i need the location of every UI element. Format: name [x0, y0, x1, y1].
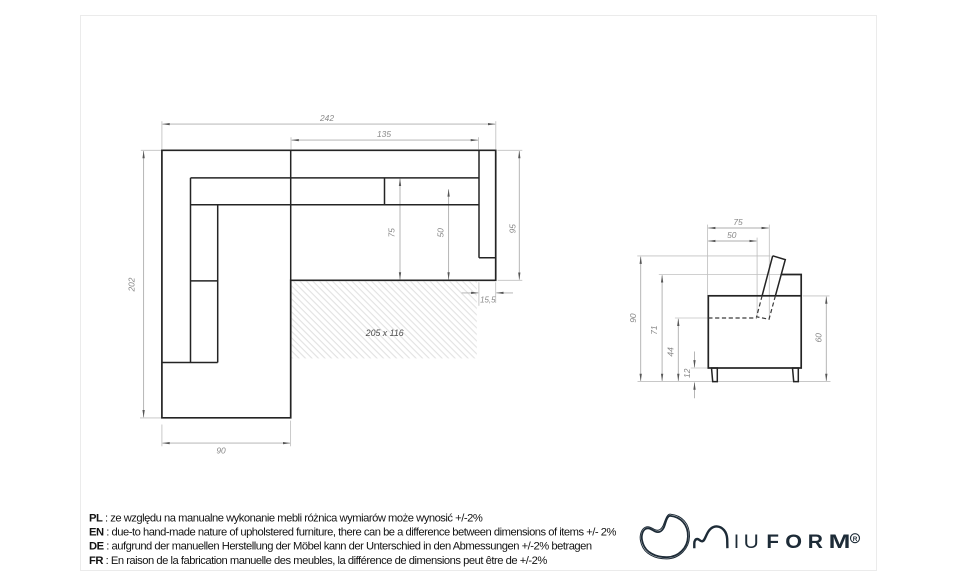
svg-text:U: U [744, 531, 759, 553]
svg-text:F: F [766, 531, 779, 553]
svg-text:15,5: 15,5 [480, 296, 496, 305]
svg-text:135: 135 [377, 129, 391, 139]
svg-text:FR : En raison de la fabricati: FR : En raison de la fabrication manuell… [89, 555, 547, 567]
svg-text:75: 75 [387, 228, 397, 238]
svg-text:DE : aufgrund der manuellen He: DE : aufgrund der manuellen Herstellung … [89, 541, 592, 553]
svg-text:44: 44 [665, 347, 675, 357]
svg-text:60: 60 [814, 333, 824, 343]
svg-text:205 x 116: 205 x 116 [365, 328, 404, 338]
svg-text:O: O [785, 531, 802, 553]
svg-text:75: 75 [733, 217, 743, 227]
svg-text:I: I [734, 531, 739, 553]
svg-text:R: R [853, 536, 858, 543]
svg-text:12: 12 [682, 368, 692, 378]
svg-text:71: 71 [649, 325, 659, 334]
svg-text:PL : ze względu na manualne wy: PL : ze względu na manualne wykonanie me… [89, 512, 483, 524]
svg-text:90: 90 [628, 313, 638, 323]
svg-text:M: M [829, 531, 851, 553]
svg-text:90: 90 [216, 445, 226, 455]
svg-text:R: R [808, 531, 823, 553]
svg-text:50: 50 [435, 228, 445, 238]
svg-text:50: 50 [727, 230, 737, 240]
svg-text:95: 95 [507, 224, 517, 234]
svg-text:EN : due-to hand-made nature o: EN : due-to hand-made nature of upholste… [89, 527, 617, 539]
svg-text:242: 242 [319, 113, 334, 123]
svg-text:202: 202 [126, 277, 136, 292]
